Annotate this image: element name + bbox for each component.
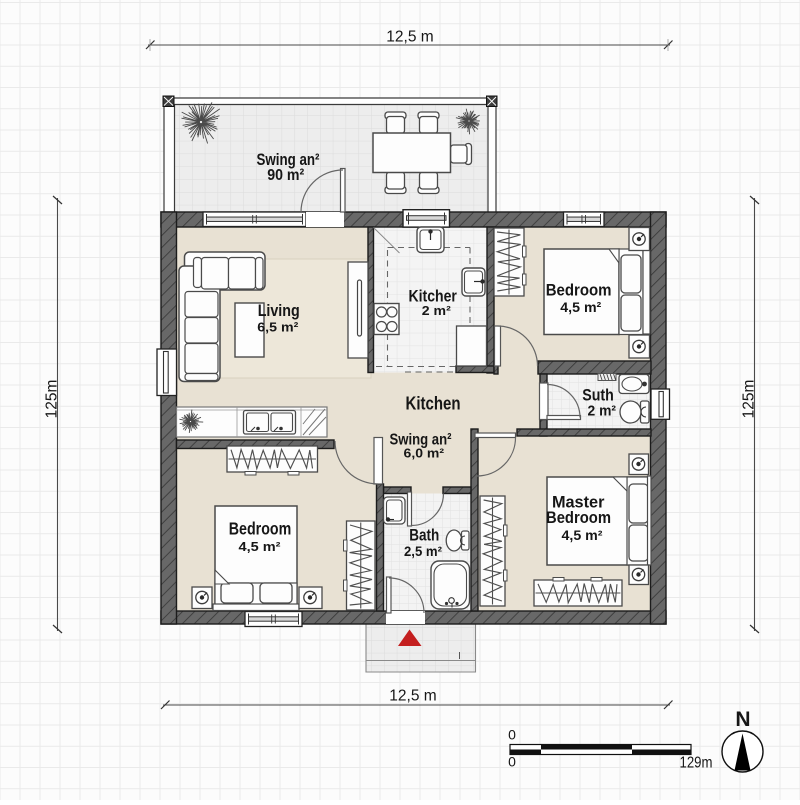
svg-text:129m: 129m [680,755,713,772]
svg-text:125m: 125m [741,380,758,419]
svg-text:0: 0 [508,754,516,770]
svg-text:2 m²: 2 m² [422,304,451,318]
svg-text:Kitchen: Kitchen [406,394,461,414]
svg-text:12,5 m: 12,5 m [386,29,433,46]
svg-text:2,5 m²: 2,5 m² [404,544,442,559]
svg-text:125m: 125m [44,380,61,419]
svg-text:0: 0 [508,727,516,743]
svg-text:4,5 m²: 4,5 m² [562,527,603,543]
svg-text:4,5 m²: 4,5 m² [239,539,282,554]
svg-text:Bedroom: Bedroom [546,281,612,299]
svg-text:Kitcher: Kitcher [409,288,458,306]
svg-text:Bedroom: Bedroom [546,508,611,527]
svg-text:Living: Living [258,302,300,320]
svg-text:6,5 m²: 6,5 m² [257,320,299,335]
svg-text:Bath: Bath [409,527,439,545]
svg-text:90 m²: 90 m² [267,167,304,184]
svg-text:N: N [735,708,750,731]
svg-text:Suth: Suth [582,386,614,404]
svg-text:4,5 m²: 4,5 m² [560,300,601,316]
svg-text:12,5 m: 12,5 m [389,688,436,705]
svg-text:2 m²: 2 m² [588,403,617,419]
svg-text:6,0 m²: 6,0 m² [404,446,445,461]
svg-text:Bedroom: Bedroom [229,519,292,539]
